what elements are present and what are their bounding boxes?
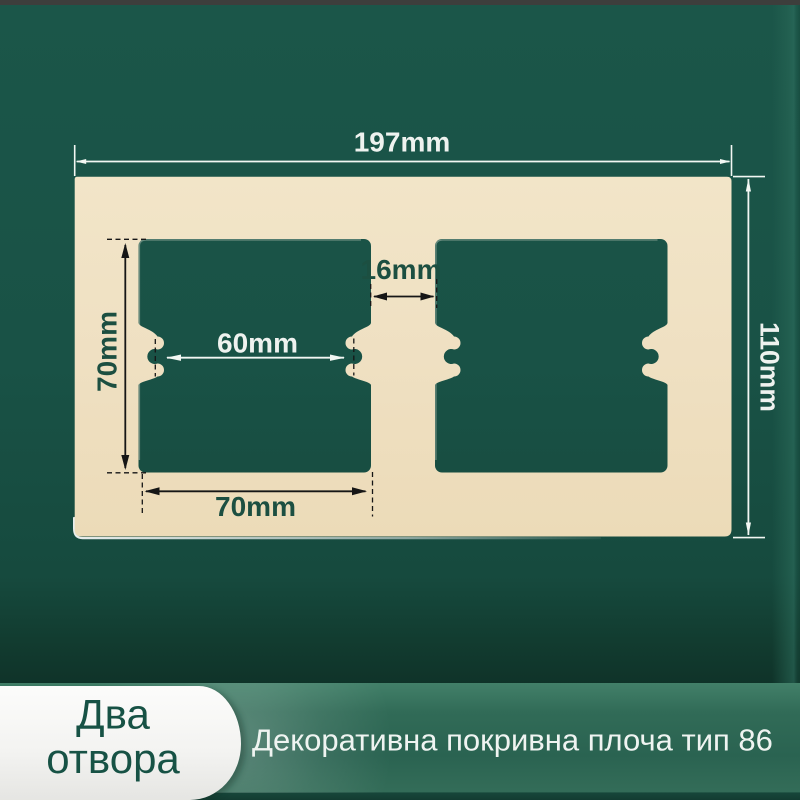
svg-text:70mm: 70mm [215,491,296,522]
svg-text:197mm: 197mm [354,127,451,158]
svg-text:70mm: 70mm [91,311,122,392]
svg-text:Декоративна покривна плоча тип: Декоративна покривна плоча тип 86 [252,723,773,758]
svg-text:110mm: 110mm [755,322,785,412]
svg-text:16mm: 16mm [361,254,442,285]
svg-text:Два: Два [76,691,150,738]
svg-text:отвора: отвора [46,735,180,782]
svg-text:60mm: 60mm [217,328,298,359]
